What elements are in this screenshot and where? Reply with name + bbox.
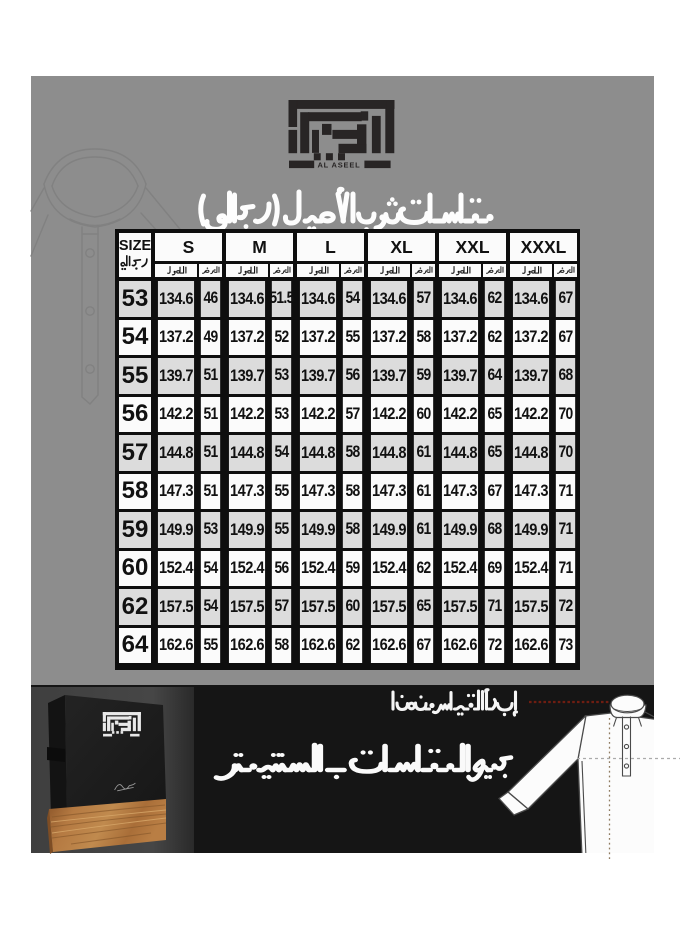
svg-text:AL ASEEL: AL ASEEL bbox=[317, 161, 360, 170]
